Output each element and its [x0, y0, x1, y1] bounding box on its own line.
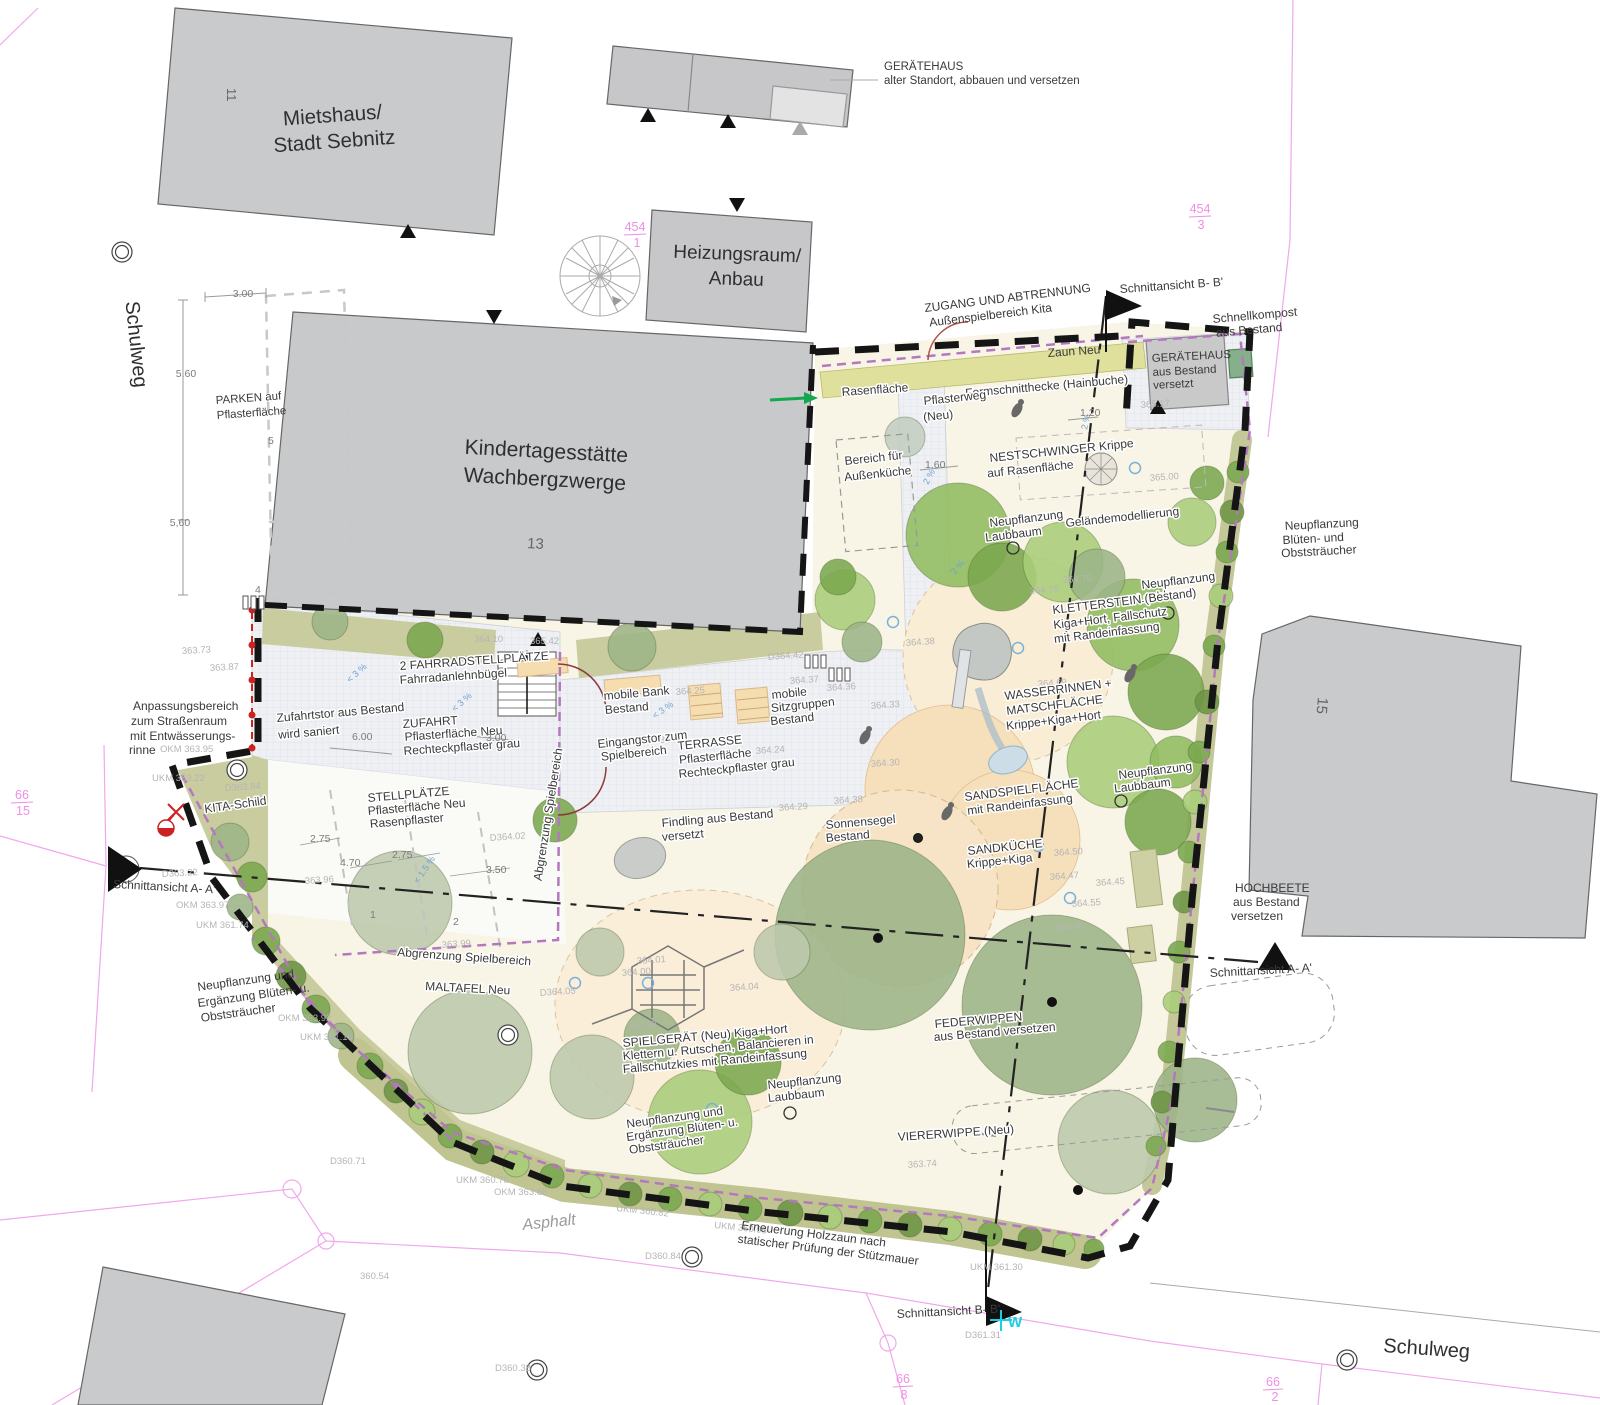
bike-rack-icon	[829, 668, 834, 681]
np-obst-line3: Obststräucher	[1281, 542, 1357, 560]
parcel-den: 2	[1272, 1390, 1279, 1404]
parcel-line	[1318, 1364, 1322, 1405]
bike-rack-icon	[805, 655, 810, 668]
dim-120: 1.20	[1080, 407, 1101, 419]
tree	[978, 1222, 1002, 1246]
anp-line4: rinne	[129, 743, 156, 757]
ger-neu-line3: versetzt	[1153, 378, 1195, 392]
geraetehaus-alt-label-1: GERÄTEHAUS	[884, 61, 964, 73]
elevation-label: D360.71	[330, 1156, 366, 1167]
parcel-num: 454	[625, 220, 646, 234]
anp-line1: Anpassungsbereich	[133, 699, 238, 713]
parcel-66-15: 66 15	[11, 788, 33, 818]
parcel-line	[0, 8, 38, 45]
tree-trunk-dot	[873, 933, 883, 943]
elevation-label: 365.00	[1149, 471, 1179, 484]
building-bottom-left	[78, 1267, 345, 1405]
parcel-454-3: 454 3	[1189, 202, 1211, 232]
neupflanzung-obst-right-label: Neupflanzung Blüten- und Obststräucher	[1279, 515, 1360, 560]
parcel-den: 8	[901, 1388, 908, 1402]
dim-600: 6.00	[352, 731, 373, 743]
section-label-aa-left: Schnittansicht A- A'	[113, 877, 216, 896]
elevation-label: D363.22	[162, 867, 198, 880]
parcel-num: 454	[1190, 202, 1211, 216]
elevation-label: 364.01	[636, 954, 666, 967]
elevation-label: D360.38	[495, 1363, 531, 1374]
elevation-label: 364.75	[1062, 573, 1092, 586]
dim-275a: 2.75	[310, 833, 331, 845]
elevation-label: UKM 361.30	[970, 1262, 1023, 1273]
heizung-line2: Anbau	[708, 268, 764, 291]
parcel-66-8: 66 8	[893, 1372, 913, 1402]
section-label-aa-right: Schnittansicht A- A'	[1209, 961, 1312, 980]
elevation-label: D361.31	[965, 1330, 1001, 1341]
elevation-label: D363.84	[225, 781, 261, 794]
elevation-label: 363.74	[907, 1158, 937, 1171]
elevation-label: 364.00	[621, 966, 651, 979]
street-label-schulweg-left: Schulweg	[120, 300, 151, 389]
tree	[754, 924, 810, 980]
elevation-label: 364.50	[1053, 846, 1083, 859]
parcel-line	[326, 1241, 1600, 1398]
person-figure-head	[1131, 664, 1137, 670]
street-label-schulweg-bottom: Schulweg	[1383, 1335, 1471, 1363]
bike-rack-icon	[813, 655, 818, 668]
tree	[408, 990, 532, 1114]
elevation-label: 364.36	[1054, 921, 1084, 934]
street-label-asphalt: Asphalt	[521, 1211, 577, 1234]
zugang-label: ZUGANG UND ABTRENNUNG Außenspielbereich …	[924, 281, 1094, 330]
parcel-num: 66	[896, 1372, 910, 1386]
elevation-label: 364.10	[474, 634, 503, 645]
tree	[407, 622, 443, 658]
stall-count-5: 5	[268, 435, 274, 447]
parcel-den: 1	[634, 236, 641, 250]
dim-line	[178, 300, 188, 595]
tree	[1190, 466, 1224, 500]
dim-560b: 5,60	[170, 517, 191, 529]
bike-rack-icon	[845, 668, 850, 681]
elevation-label: 364.47	[1049, 870, 1079, 883]
federwippen-zone	[1180, 969, 1338, 1059]
hochb-line3: versetzen	[1231, 909, 1283, 923]
elevation-label: 364.25	[675, 685, 705, 698]
elevation-label: 364.38	[833, 794, 863, 807]
tree	[348, 851, 452, 955]
street-edge-line	[1150, 1283, 1600, 1332]
parcel-line	[1268, 0, 1293, 437]
person-figure-head	[948, 802, 954, 808]
person-figure-head	[866, 726, 872, 732]
tree	[550, 1035, 634, 1119]
parcel-num: 66	[1266, 1375, 1280, 1389]
sunsail-post	[914, 834, 922, 842]
parcel-line	[0, 836, 106, 1092]
elevation-label: 364.33	[870, 699, 900, 712]
elevation-label: 364.55	[1071, 897, 1101, 910]
tree-trunk-dot	[1073, 1185, 1083, 1195]
dim-560a: 5.60	[176, 368, 197, 380]
house-number-11: 11	[224, 88, 239, 102]
elevation-label: 363.93	[627, 1019, 657, 1032]
tree-trunk-dot	[1047, 997, 1057, 1007]
tree	[1220, 500, 1244, 524]
elevation-label: 364.24	[755, 744, 785, 757]
parken-label: PARKEN auf Pflasterfläche	[215, 390, 286, 422]
parken-line1: PARKEN auf	[215, 390, 282, 407]
elevation-label: 363.87	[210, 661, 240, 674]
w-letter: W	[1008, 1314, 1023, 1331]
elevation-label: 365.17	[1140, 398, 1170, 411]
geraetehaus-alt-label-2: alter Standort, abbauen und versetzen	[884, 75, 1080, 87]
bike-rack-icon	[251, 596, 256, 609]
building-geraetehaus-alt-light	[770, 86, 847, 127]
tree	[1128, 654, 1204, 730]
heizung-line1: Heizungsraum/	[673, 242, 802, 267]
parcel-den: 15	[16, 804, 30, 818]
tree	[1209, 584, 1233, 608]
hochb-line2: aus Bestand	[1233, 895, 1300, 909]
elevation-label: UKM 361.16	[300, 1032, 353, 1043]
hochb-line1: HOCHBEETE	[1235, 881, 1310, 895]
elevation-label: 364.38	[905, 636, 935, 649]
dim-160: 1.60	[925, 459, 946, 471]
elevation-label: 364.45	[1095, 876, 1125, 889]
parcel-66-2: 66 2	[1263, 1375, 1283, 1404]
section-label-bb-bottom: Schnittansicht B- B'	[896, 1302, 1000, 1321]
person-figure-head	[1018, 399, 1024, 405]
elevation-label: OKM 363.88	[494, 1187, 547, 1198]
hydrant-icon	[158, 804, 184, 836]
dim-350: 3.50	[486, 864, 507, 876]
elevation-label: OKM 363.95	[160, 744, 213, 755]
dim-300-top: 3.00	[233, 288, 254, 300]
hochbeet-2	[1127, 925, 1156, 964]
elevation-label: 365.42	[530, 636, 559, 647]
elevation-label: 363.96	[304, 874, 334, 887]
tree	[608, 623, 656, 671]
dim-470: 4.70	[340, 857, 361, 869]
elevation-label: 363.73	[182, 644, 212, 657]
dim-275b: 2.75	[392, 849, 413, 861]
parcel-454-1: 454 1	[624, 220, 646, 250]
stall-count-4: 4	[255, 584, 261, 596]
site-plan-canvas: 365.42364.10D364.42364.25364.11364.24364…	[0, 0, 1600, 1405]
elevation-label: 364.04	[729, 981, 759, 994]
elevation-label: D360.84	[645, 1251, 681, 1262]
tree	[842, 622, 882, 662]
bike-rack-icon	[243, 596, 248, 609]
hochbeete-label: HOCHBEETE aus Bestand versetzen	[1231, 881, 1310, 923]
elevation-label: OKM 363.92	[278, 1013, 331, 1024]
green-arrow	[770, 398, 806, 400]
elevation-label: OKM 363.97	[176, 900, 229, 911]
kompost-label: Schnellkompost aus Bestand	[1212, 305, 1299, 340]
parcel-line	[104, 745, 106, 866]
anp-line3: mit Entwässerungs-	[130, 729, 235, 743]
stall-number-1: 1	[370, 909, 376, 921]
elevation-label: 360.54	[360, 1271, 389, 1282]
tree	[211, 823, 249, 861]
elevation-label: UKM 363.22	[152, 773, 205, 784]
elevation-label: 364.29	[778, 801, 808, 814]
parken-line2: Pflasterfläche	[216, 405, 286, 422]
elevation-label: 364.30	[870, 757, 900, 770]
elevation-label: 364.36	[826, 681, 856, 694]
dim-300-zufahrt: 3.00	[486, 732, 507, 744]
section-label-bb-top: Schnittansicht B- B'	[1119, 275, 1223, 296]
anp-line2: zum Straßenraum	[131, 714, 227, 728]
bike-rack-icon	[259, 596, 264, 609]
house-number-13: 13	[527, 535, 545, 553]
tree	[820, 559, 856, 595]
bike-rack-icon	[821, 655, 826, 668]
spiral-stair-icon	[560, 236, 640, 316]
bike-rack-icon	[837, 668, 842, 681]
site-plan-drawing: 365.42364.10D364.42364.25364.11364.24364…	[0, 0, 1600, 1405]
elevation-label: UKM 360.78	[456, 1175, 509, 1186]
stall-number-2: 2	[453, 916, 459, 928]
sitzgruppe-icon	[735, 687, 770, 724]
elevation-label: UKM 361.74	[196, 920, 249, 931]
house-number-15: 15	[1313, 697, 1331, 715]
elevation-label: 364.70	[1029, 584, 1059, 597]
parcel-den: 3	[1198, 218, 1205, 232]
parcel-num: 66	[15, 788, 29, 802]
tree	[576, 928, 624, 976]
